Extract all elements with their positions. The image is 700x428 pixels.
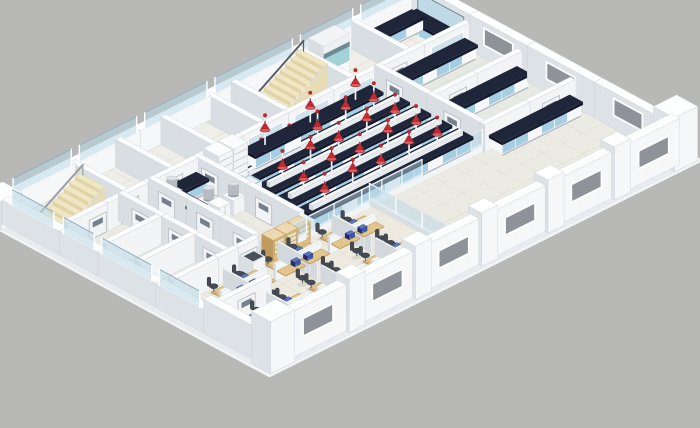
screenshot-root — [0, 0, 700, 428]
corner-pilaster-south — [251, 299, 294, 373]
laboratory-3d-floor-plan — [0, 0, 700, 428]
